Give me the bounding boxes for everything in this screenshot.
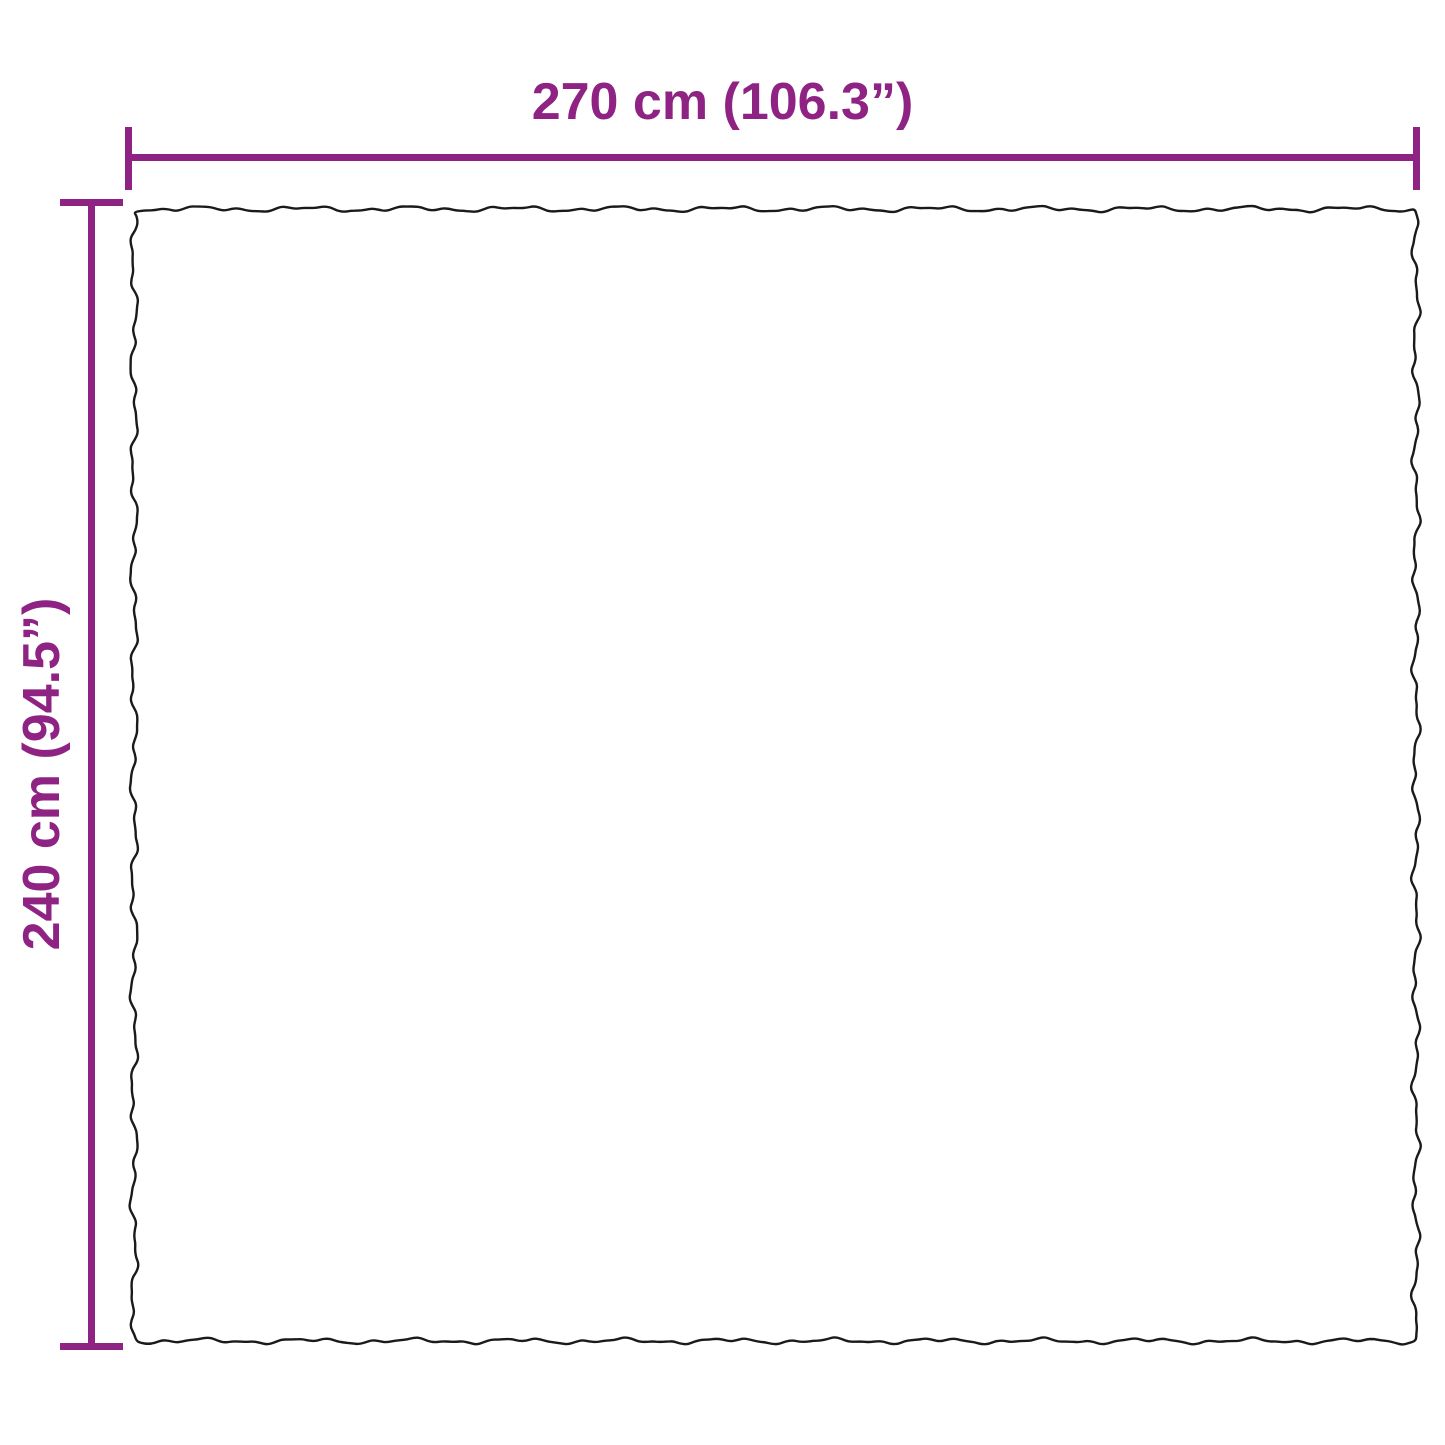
blanket-wavy-outline [130,206,1421,1344]
width-dimension-line [127,154,1418,161]
height-dimension-line [88,201,95,1347]
width-dimension-tick-right [1413,127,1420,190]
height-dimension-label: 240 cm (94.5”) [12,598,72,951]
height-dimension-tick-top [60,199,123,206]
product-dimension-diagram: 270 cm (106.3”) 240 cm (94.5”) [0,0,1445,1445]
product-outline-svg [0,0,1445,1445]
height-dimension-tick-bottom [60,1343,123,1350]
width-dimension-tick-left [125,127,132,190]
width-dimension-label: 270 cm (106.3”) [0,72,1445,132]
